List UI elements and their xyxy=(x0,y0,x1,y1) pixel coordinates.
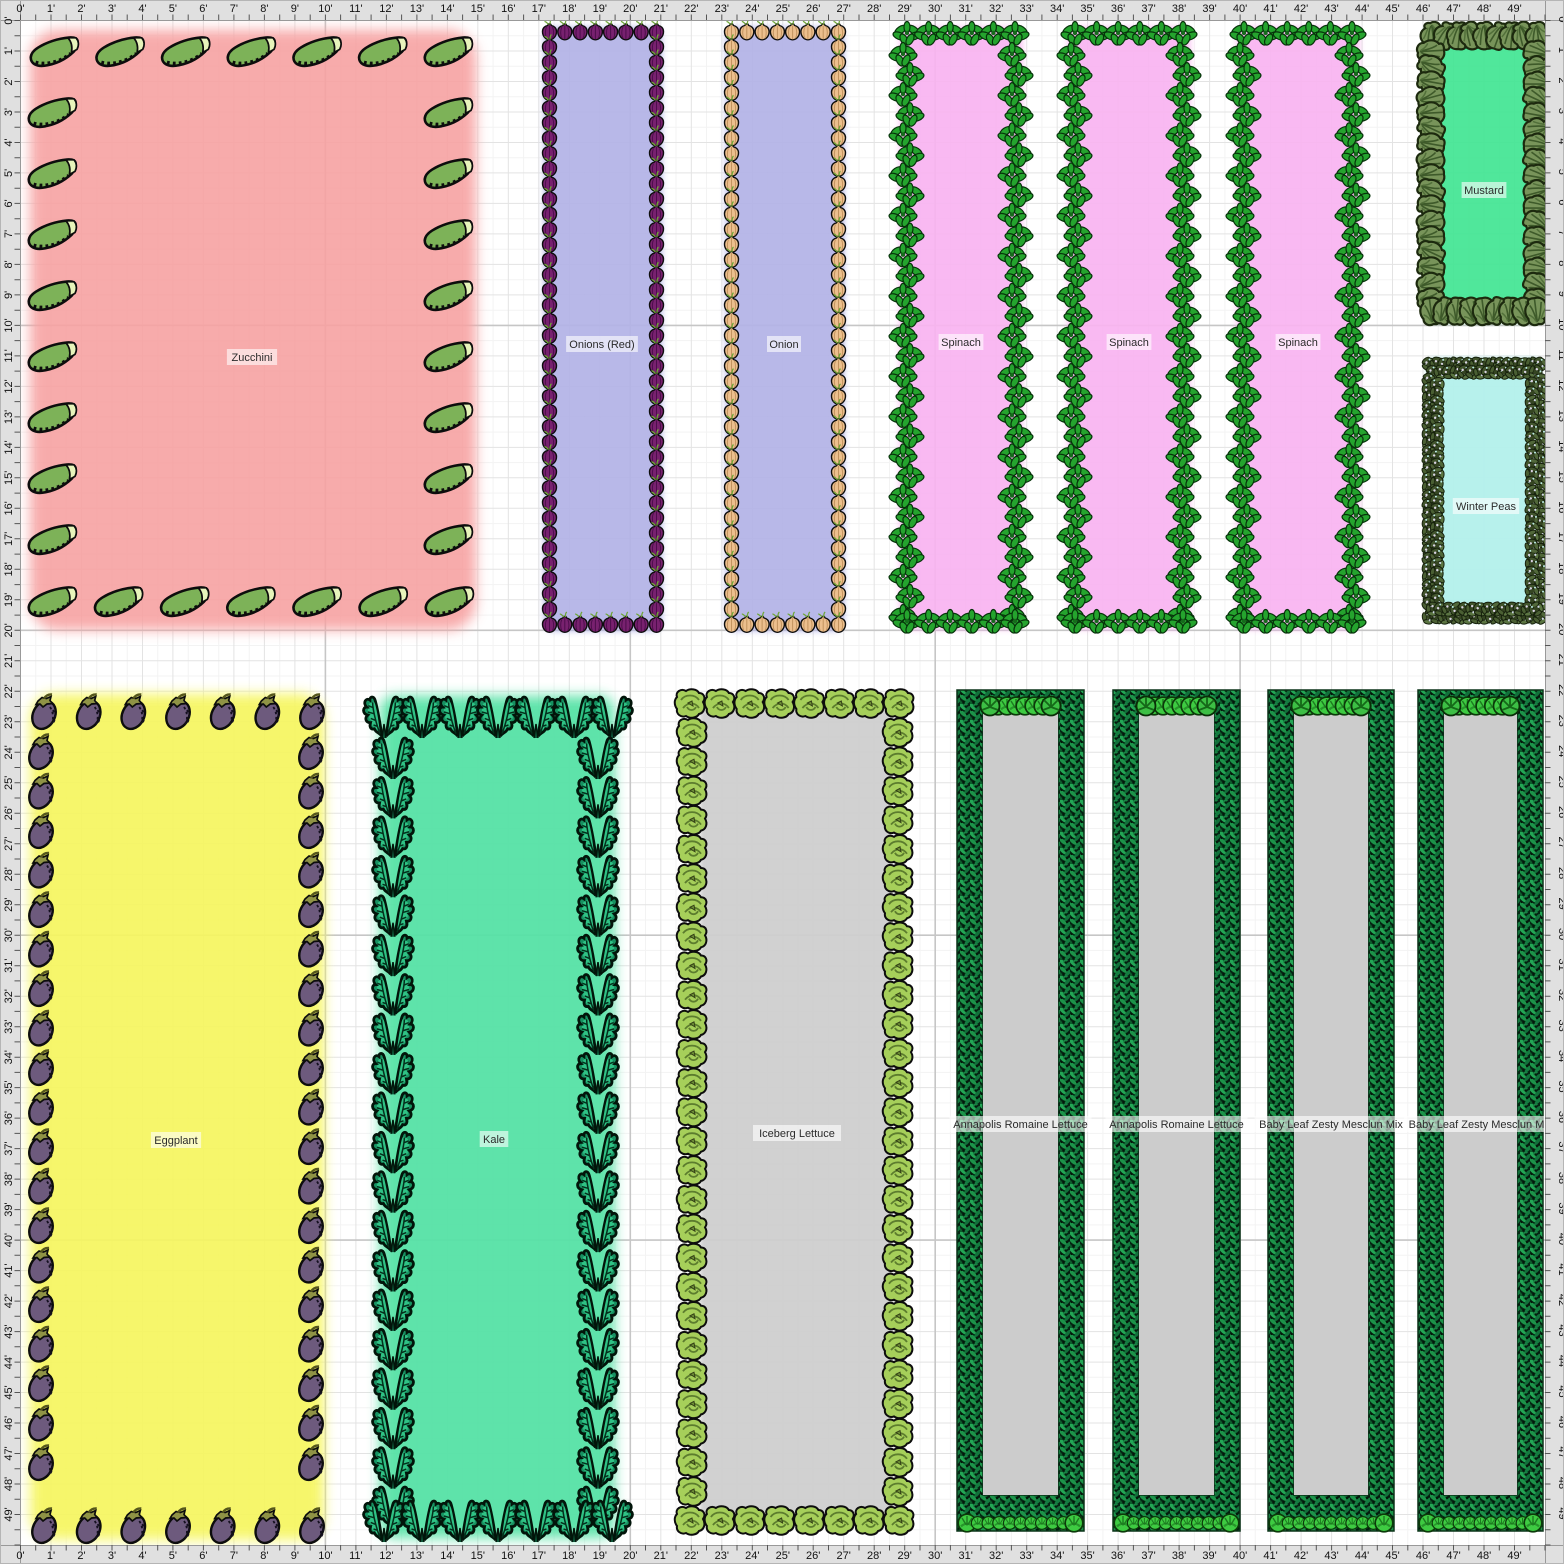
svg-text:20': 20' xyxy=(1556,623,1564,637)
svg-text:27': 27' xyxy=(837,1550,851,1562)
svg-text:26': 26' xyxy=(1556,806,1564,820)
svg-text:12': 12' xyxy=(3,379,15,393)
svg-text:10': 10' xyxy=(318,3,332,15)
svg-text:26': 26' xyxy=(806,3,820,15)
svg-text:19': 19' xyxy=(3,593,15,607)
svg-text:0': 0' xyxy=(16,1550,24,1562)
svg-text:34': 34' xyxy=(3,1050,15,1064)
svg-text:16': 16' xyxy=(501,3,515,15)
svg-text:Annapolis Romaine Lettuce: Annapolis Romaine Lettuce xyxy=(953,1119,1088,1131)
svg-text:25': 25' xyxy=(776,3,790,15)
svg-text:40': 40' xyxy=(3,1233,15,1247)
svg-text:9': 9' xyxy=(291,1550,299,1562)
svg-text:29': 29' xyxy=(3,898,15,912)
svg-text:0': 0' xyxy=(1556,16,1564,24)
svg-text:36': 36' xyxy=(1111,1550,1125,1562)
svg-text:19': 19' xyxy=(593,3,607,15)
svg-text:14': 14' xyxy=(440,3,454,15)
svg-text:32': 32' xyxy=(989,3,1003,15)
svg-text:22': 22' xyxy=(1556,684,1564,698)
svg-text:25': 25' xyxy=(776,1550,790,1562)
svg-text:14': 14' xyxy=(1556,440,1564,454)
svg-text:8': 8' xyxy=(260,3,268,15)
svg-text:23': 23' xyxy=(715,3,729,15)
svg-text:18': 18' xyxy=(3,562,15,576)
svg-text:1': 1' xyxy=(47,1550,55,1562)
svg-text:48': 48' xyxy=(1477,3,1491,15)
svg-text:2': 2' xyxy=(77,1550,85,1562)
svg-text:5': 5' xyxy=(3,169,15,177)
svg-text:45': 45' xyxy=(3,1385,15,1399)
svg-text:15': 15' xyxy=(3,471,15,485)
svg-text:24': 24' xyxy=(1556,745,1564,759)
svg-text:35': 35' xyxy=(1080,1550,1094,1562)
svg-text:Spinach: Spinach xyxy=(1278,337,1318,349)
svg-text:1': 1' xyxy=(3,47,15,55)
svg-text:33': 33' xyxy=(1020,1550,1034,1562)
svg-text:37': 37' xyxy=(1141,3,1155,15)
svg-text:7': 7' xyxy=(1556,230,1564,238)
svg-text:30': 30' xyxy=(3,928,15,942)
svg-text:11': 11' xyxy=(349,1550,363,1562)
svg-text:25': 25' xyxy=(3,776,15,790)
svg-text:37': 37' xyxy=(3,1141,15,1155)
svg-text:48': 48' xyxy=(1556,1477,1564,1491)
svg-text:Eggplant: Eggplant xyxy=(154,1135,197,1147)
svg-text:49': 49' xyxy=(1556,1507,1564,1521)
svg-text:24': 24' xyxy=(745,1550,759,1562)
svg-text:41': 41' xyxy=(1556,1263,1564,1277)
svg-text:23': 23' xyxy=(3,715,15,729)
svg-text:22': 22' xyxy=(3,684,15,698)
svg-text:21': 21' xyxy=(1556,654,1564,668)
svg-text:36': 36' xyxy=(1111,3,1125,15)
svg-text:42': 42' xyxy=(1294,1550,1308,1562)
svg-text:12': 12' xyxy=(1556,379,1564,393)
svg-text:30': 30' xyxy=(1556,928,1564,942)
svg-text:Baby Leaf Zesty Mesclun Mix: Baby Leaf Zesty Mesclun Mix xyxy=(1259,1119,1403,1131)
svg-text:29': 29' xyxy=(898,3,912,15)
svg-text:18': 18' xyxy=(562,3,576,15)
svg-text:15': 15' xyxy=(471,1550,485,1562)
svg-text:46': 46' xyxy=(3,1416,15,1430)
svg-text:17': 17' xyxy=(532,1550,546,1562)
svg-text:16': 16' xyxy=(3,501,15,515)
svg-text:8': 8' xyxy=(260,1550,268,1562)
svg-text:19': 19' xyxy=(1556,593,1564,607)
svg-text:29': 29' xyxy=(898,1550,912,1562)
svg-text:30': 30' xyxy=(928,3,942,15)
svg-text:43': 43' xyxy=(1556,1324,1564,1338)
svg-text:40': 40' xyxy=(1233,1550,1247,1562)
svg-text:25': 25' xyxy=(1556,776,1564,790)
svg-text:11': 11' xyxy=(1556,349,1564,363)
svg-text:37': 37' xyxy=(1556,1141,1564,1155)
svg-text:22': 22' xyxy=(684,1550,698,1562)
svg-text:42': 42' xyxy=(3,1294,15,1308)
svg-text:4': 4' xyxy=(1556,138,1564,146)
svg-text:41': 41' xyxy=(3,1263,15,1277)
svg-text:36': 36' xyxy=(1556,1111,1564,1125)
svg-text:16': 16' xyxy=(1556,501,1564,515)
svg-text:21': 21' xyxy=(654,3,668,15)
svg-text:28': 28' xyxy=(867,1550,881,1562)
svg-text:3': 3' xyxy=(1556,108,1564,116)
svg-text:34': 34' xyxy=(1050,3,1064,15)
svg-text:3': 3' xyxy=(3,108,15,116)
svg-text:6': 6' xyxy=(3,199,15,207)
svg-text:46': 46' xyxy=(1556,1416,1564,1430)
svg-text:10': 10' xyxy=(3,318,15,332)
svg-text:41': 41' xyxy=(1263,3,1277,15)
svg-text:34': 34' xyxy=(1050,1550,1064,1562)
svg-text:3': 3' xyxy=(108,3,116,15)
svg-text:43': 43' xyxy=(1324,1550,1338,1562)
svg-text:11': 11' xyxy=(3,349,15,363)
svg-text:20': 20' xyxy=(623,1550,637,1562)
svg-text:13': 13' xyxy=(410,3,424,15)
svg-text:40': 40' xyxy=(1233,3,1247,15)
svg-text:6': 6' xyxy=(199,1550,207,1562)
svg-text:0': 0' xyxy=(16,3,24,15)
svg-text:38': 38' xyxy=(1172,3,1186,15)
svg-text:Zucchini: Zucchini xyxy=(232,352,273,364)
svg-text:6': 6' xyxy=(1556,199,1564,207)
svg-text:4': 4' xyxy=(138,1550,146,1562)
svg-text:31': 31' xyxy=(959,1550,973,1562)
svg-text:Winter Peas: Winter Peas xyxy=(1456,501,1516,513)
svg-text:38': 38' xyxy=(3,1172,15,1186)
svg-text:46': 46' xyxy=(1416,3,1430,15)
svg-text:11': 11' xyxy=(349,3,363,15)
svg-text:0': 0' xyxy=(3,16,15,24)
svg-text:6': 6' xyxy=(199,3,207,15)
svg-text:1': 1' xyxy=(47,3,55,15)
svg-text:29': 29' xyxy=(1556,898,1564,912)
svg-text:35': 35' xyxy=(1080,3,1094,15)
svg-text:44': 44' xyxy=(3,1355,15,1369)
svg-text:9': 9' xyxy=(3,291,15,299)
svg-text:34': 34' xyxy=(1556,1050,1564,1064)
svg-text:32': 32' xyxy=(1556,989,1564,1003)
svg-text:17': 17' xyxy=(532,3,546,15)
svg-text:39': 39' xyxy=(1556,1202,1564,1216)
svg-text:26': 26' xyxy=(3,806,15,820)
svg-text:2': 2' xyxy=(3,77,15,85)
svg-text:5': 5' xyxy=(169,1550,177,1562)
svg-text:39': 39' xyxy=(1202,1550,1216,1562)
svg-text:23': 23' xyxy=(715,1550,729,1562)
svg-text:17': 17' xyxy=(1556,532,1564,546)
svg-text:44': 44' xyxy=(1355,3,1369,15)
svg-text:20': 20' xyxy=(623,3,637,15)
svg-text:15': 15' xyxy=(471,3,485,15)
svg-text:9': 9' xyxy=(1556,291,1564,299)
svg-text:33': 33' xyxy=(1556,1020,1564,1034)
svg-text:48': 48' xyxy=(1477,1550,1491,1562)
svg-text:19': 19' xyxy=(593,1550,607,1562)
svg-text:40': 40' xyxy=(1556,1233,1564,1247)
svg-text:27': 27' xyxy=(1556,837,1564,851)
svg-text:32': 32' xyxy=(3,989,15,1003)
svg-text:47': 47' xyxy=(1556,1446,1564,1460)
svg-text:Spinach: Spinach xyxy=(1109,337,1149,349)
svg-text:39': 39' xyxy=(1202,3,1216,15)
svg-text:32': 32' xyxy=(989,1550,1003,1562)
svg-text:35': 35' xyxy=(3,1080,15,1094)
svg-text:28': 28' xyxy=(867,3,881,15)
svg-text:49': 49' xyxy=(1507,3,1521,15)
svg-text:5': 5' xyxy=(1556,169,1564,177)
svg-text:38': 38' xyxy=(1172,1550,1186,1562)
svg-text:16': 16' xyxy=(501,1550,515,1562)
svg-text:36': 36' xyxy=(3,1111,15,1125)
svg-text:39': 39' xyxy=(3,1202,15,1216)
svg-text:Spinach: Spinach xyxy=(941,337,981,349)
svg-text:13': 13' xyxy=(3,410,15,424)
svg-text:42': 42' xyxy=(1294,3,1308,15)
svg-text:14': 14' xyxy=(440,1550,454,1562)
svg-text:47': 47' xyxy=(1446,1550,1460,1562)
svg-text:18': 18' xyxy=(562,1550,576,1562)
svg-text:24': 24' xyxy=(3,745,15,759)
svg-text:30': 30' xyxy=(928,1550,942,1562)
svg-text:35': 35' xyxy=(1556,1080,1564,1094)
svg-text:8': 8' xyxy=(1556,260,1564,268)
svg-text:27': 27' xyxy=(837,3,851,15)
svg-text:37': 37' xyxy=(1141,1550,1155,1562)
svg-text:28': 28' xyxy=(3,867,15,881)
svg-text:49': 49' xyxy=(3,1507,15,1521)
svg-text:31': 31' xyxy=(3,959,15,973)
svg-text:49': 49' xyxy=(1507,1550,1521,1562)
svg-text:31': 31' xyxy=(1556,959,1564,973)
svg-text:Iceberg Lettuce: Iceberg Lettuce xyxy=(759,1128,835,1140)
svg-text:10': 10' xyxy=(318,1550,332,1562)
svg-text:22': 22' xyxy=(684,3,698,15)
svg-text:2': 2' xyxy=(77,3,85,15)
svg-text:43': 43' xyxy=(1324,3,1338,15)
svg-text:8': 8' xyxy=(3,260,15,268)
svg-text:38': 38' xyxy=(1556,1172,1564,1186)
svg-text:45': 45' xyxy=(1385,1550,1399,1562)
svg-text:Kale: Kale xyxy=(483,1134,505,1146)
svg-text:47': 47' xyxy=(3,1446,15,1460)
svg-text:45': 45' xyxy=(1556,1385,1564,1399)
svg-text:Baby Leaf Zesty Mesclun Mix: Baby Leaf Zesty Mesclun Mix xyxy=(1409,1119,1553,1131)
svg-text:48': 48' xyxy=(3,1477,15,1491)
svg-text:7': 7' xyxy=(230,3,238,15)
svg-text:42': 42' xyxy=(1556,1294,1564,1308)
svg-text:15': 15' xyxy=(1556,471,1564,485)
svg-text:26': 26' xyxy=(806,1550,820,1562)
svg-text:13': 13' xyxy=(410,1550,424,1562)
svg-text:18': 18' xyxy=(1556,562,1564,576)
svg-text:41': 41' xyxy=(1263,1550,1277,1562)
svg-text:4': 4' xyxy=(138,3,146,15)
svg-text:28': 28' xyxy=(1556,867,1564,881)
svg-text:23': 23' xyxy=(1556,715,1564,729)
svg-text:10': 10' xyxy=(1556,318,1564,332)
svg-text:Onions (Red): Onions (Red) xyxy=(569,339,634,351)
svg-text:13': 13' xyxy=(1556,410,1564,424)
svg-text:44': 44' xyxy=(1355,1550,1369,1562)
svg-text:7': 7' xyxy=(3,230,15,238)
svg-text:7': 7' xyxy=(230,1550,238,1562)
svg-text:12': 12' xyxy=(379,1550,393,1562)
svg-text:12': 12' xyxy=(379,3,393,15)
svg-text:21': 21' xyxy=(654,1550,668,1562)
svg-text:Onion: Onion xyxy=(769,339,798,351)
svg-text:33': 33' xyxy=(1020,3,1034,15)
svg-text:Annapolis Romaine Lettuce: Annapolis Romaine Lettuce xyxy=(1109,1119,1244,1131)
svg-text:43': 43' xyxy=(3,1324,15,1338)
svg-text:5': 5' xyxy=(169,3,177,15)
svg-text:4': 4' xyxy=(3,138,15,146)
svg-text:24': 24' xyxy=(745,3,759,15)
svg-text:2': 2' xyxy=(1556,77,1564,85)
svg-text:1': 1' xyxy=(1556,47,1564,55)
svg-text:3': 3' xyxy=(108,1550,116,1562)
svg-text:27': 27' xyxy=(3,837,15,851)
svg-text:17': 17' xyxy=(3,532,15,546)
svg-text:33': 33' xyxy=(3,1020,15,1034)
svg-text:44': 44' xyxy=(1556,1355,1564,1369)
svg-text:46': 46' xyxy=(1416,1550,1430,1562)
svg-text:14': 14' xyxy=(3,440,15,454)
svg-text:21': 21' xyxy=(3,654,15,668)
svg-text:20': 20' xyxy=(3,623,15,637)
svg-text:Mustard: Mustard xyxy=(1464,185,1504,197)
svg-text:45': 45' xyxy=(1385,3,1399,15)
svg-text:9': 9' xyxy=(291,3,299,15)
svg-text:47': 47' xyxy=(1446,3,1460,15)
svg-text:31': 31' xyxy=(959,3,973,15)
